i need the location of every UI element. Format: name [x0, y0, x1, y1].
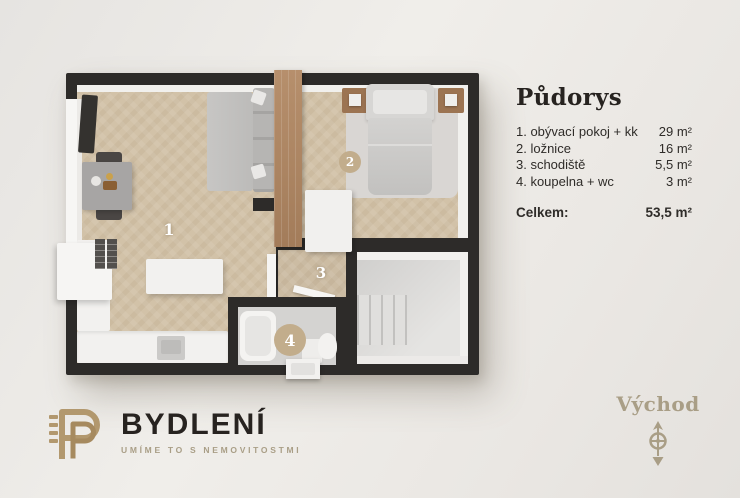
kitchen-island: [146, 259, 223, 294]
legend-title: Půdorys: [516, 84, 692, 111]
legend-row: 2. ložnice 16 m²: [516, 141, 692, 158]
legend-row: 4. koupelna + wc 3 m²: [516, 174, 692, 191]
kitchen-counter-bottom: [77, 331, 228, 363]
oven-stack-right: [107, 239, 117, 269]
dining-table: [82, 162, 132, 210]
bed-pillow: [373, 90, 427, 114]
logo-mark-icon: [46, 403, 108, 461]
room-label-bedroom: 2: [339, 151, 361, 173]
legend-row: 3. schodiště 5,5 m²: [516, 157, 692, 174]
lamp-right: [445, 94, 457, 106]
wood-partition: [274, 70, 302, 247]
legend-total-label: Celkem:: [516, 205, 569, 222]
plate: [91, 176, 101, 186]
nightstand-left: [342, 88, 368, 113]
lamp-left: [349, 94, 361, 106]
brand-tagline: UMÍME TO S NEMOVITOSTMI: [121, 445, 301, 455]
bathtub: [240, 311, 276, 361]
legend-total-area: 53,5 m²: [645, 205, 692, 222]
sink-basin: [161, 340, 181, 354]
bed-blanket: [368, 118, 432, 195]
oven-stack-left: [95, 239, 105, 269]
sofa-chaise: [207, 92, 253, 191]
brand-text-block: BYDLENÍ UMÍME TO S NEMOVITOSTMI: [121, 410, 301, 455]
legend-room-label: 1. obývací pokoj + kk: [516, 124, 638, 141]
living-room-top-wall-face: [77, 85, 276, 92]
wall-stub: [253, 198, 276, 211]
legend-room-label: 3. schodiště: [516, 157, 585, 174]
legend-room-area: 3 m²: [666, 174, 692, 191]
hall-top-wall-face: [357, 252, 468, 260]
compass-direction-label: Východ: [606, 392, 710, 416]
room-label-living: 1: [161, 220, 177, 239]
legend-room-area: 5,5 m²: [655, 157, 692, 174]
left-wall-window: [66, 99, 77, 245]
legend-room-label: 4. koupelna + wc: [516, 174, 614, 191]
bed-headboard: [366, 84, 434, 120]
legend-room-area: 16 m²: [659, 141, 692, 158]
bathtub-basin: [245, 316, 271, 356]
legend-room-area: 29 m²: [659, 124, 692, 141]
legend-row: 1. obývací pokoj + kk 29 m²: [516, 124, 692, 141]
bathroom-sink-basin: [291, 363, 315, 375]
legend-total-row: Celkem: 53,5 m²: [516, 205, 692, 222]
brand-name: BYDLENÍ: [121, 410, 301, 440]
toilet: [318, 333, 337, 359]
stairs: [357, 295, 407, 345]
food-bowl: [106, 173, 113, 180]
door-leaf-living: [267, 254, 276, 303]
blanket-fold: [368, 144, 432, 146]
room-label-bathroom: 4: [274, 324, 306, 356]
compass: Východ: [606, 392, 710, 472]
compass-icon: [647, 421, 669, 467]
legend-panel: Půdorys 1. obývací pokoj + kk 29 m² 2. l…: [516, 84, 692, 222]
kitchen-sink: [157, 336, 185, 360]
bedroom-wardrobe: [305, 190, 352, 252]
hall-bottom-wall-face: [357, 356, 468, 364]
bathroom-sink: [286, 359, 320, 379]
brand-logo: BYDLENÍ UMÍME TO S NEMOVITOSTMI: [46, 403, 301, 461]
legend-room-label: 2. ložnice: [516, 141, 571, 158]
floor-plan: 1 2 3 4: [66, 73, 479, 375]
food-board: [103, 181, 117, 190]
hall-right-wall-face: [460, 252, 468, 364]
nightstand-right: [438, 88, 464, 113]
room-label-staircase: 3: [313, 264, 329, 282]
